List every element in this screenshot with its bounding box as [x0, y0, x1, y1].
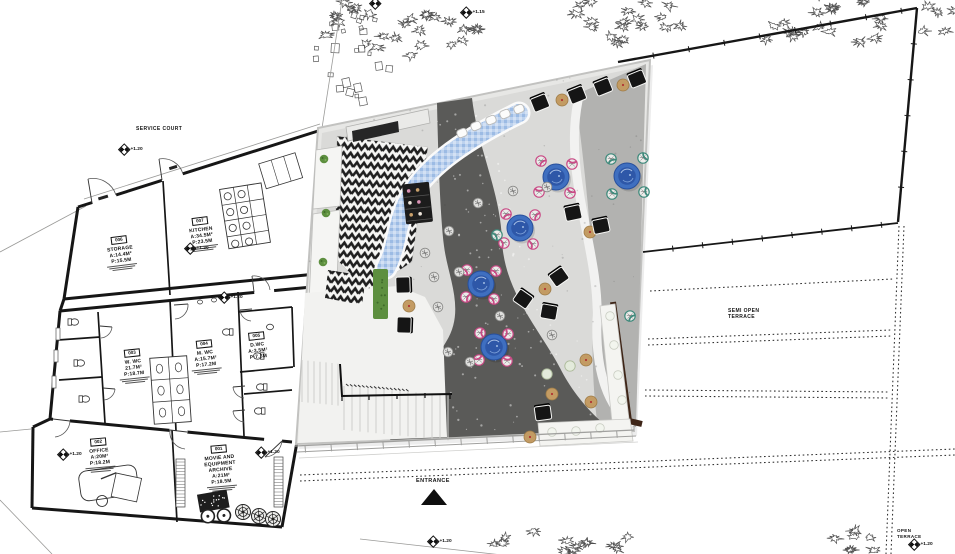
terrace-dashed-lines — [645, 226, 904, 554]
site-plan-page: SERVICE COURT SEMI OPEN TERRACE OPEN TER… — [0, 0, 955, 554]
elevation-marker: +1.15 — [462, 8, 485, 17]
elevation-value: +1.20 — [440, 539, 452, 544]
elevation-marker: +1.20 — [910, 540, 933, 549]
elevation-marker: +1.20 — [429, 537, 452, 546]
elevation-marker: +1.20 — [120, 145, 143, 154]
level-diamond-icon — [427, 535, 439, 547]
room-number: 006 — [111, 235, 128, 245]
interior-render — [295, 60, 653, 458]
level-diamond-icon — [118, 143, 130, 155]
level-diamond-icon — [460, 6, 472, 18]
room-number: 005 — [248, 331, 264, 341]
elevation-marker: +1.20 — [220, 293, 243, 302]
entrance-label: ENTRANCE — [416, 478, 450, 484]
open-terrace-line2: TERRACE — [897, 534, 922, 540]
elevation-marker — [371, 0, 380, 8]
site-plan-canvas — [0, 0, 955, 554]
elevation-value: +1.20 — [921, 542, 933, 547]
room-number: 003 — [124, 348, 140, 358]
level-diamond-icon — [908, 538, 920, 550]
elevation-value: +1.20 — [268, 450, 280, 455]
semi-open-terrace-label: SEMI OPEN TERRACE — [728, 309, 759, 320]
room-number: 002 — [90, 437, 106, 446]
elevation-value: +1.15 — [473, 10, 485, 15]
service-court-label: SERVICE COURT — [136, 126, 182, 132]
entrance-arrow-icon — [421, 489, 447, 505]
room-label-002: 002OFFICEA:20M²P:18.2M — [52, 426, 145, 476]
room-number: 004 — [196, 339, 212, 349]
level-diamond-icon — [218, 291, 230, 303]
room-number: 007 — [192, 216, 209, 226]
open-terrace-label: OPEN TERRACE — [897, 528, 922, 539]
room-label-001: 001MOVIE ANDEQUIPMENTARCHIVEA:21M²P:18.5… — [173, 433, 267, 495]
semi-open-terrace-line2: TERRACE — [728, 315, 759, 321]
room-number: 001 — [211, 444, 227, 453]
elevation-value: +1.20 — [231, 295, 243, 300]
elevation-value: +1.20 — [131, 147, 143, 152]
